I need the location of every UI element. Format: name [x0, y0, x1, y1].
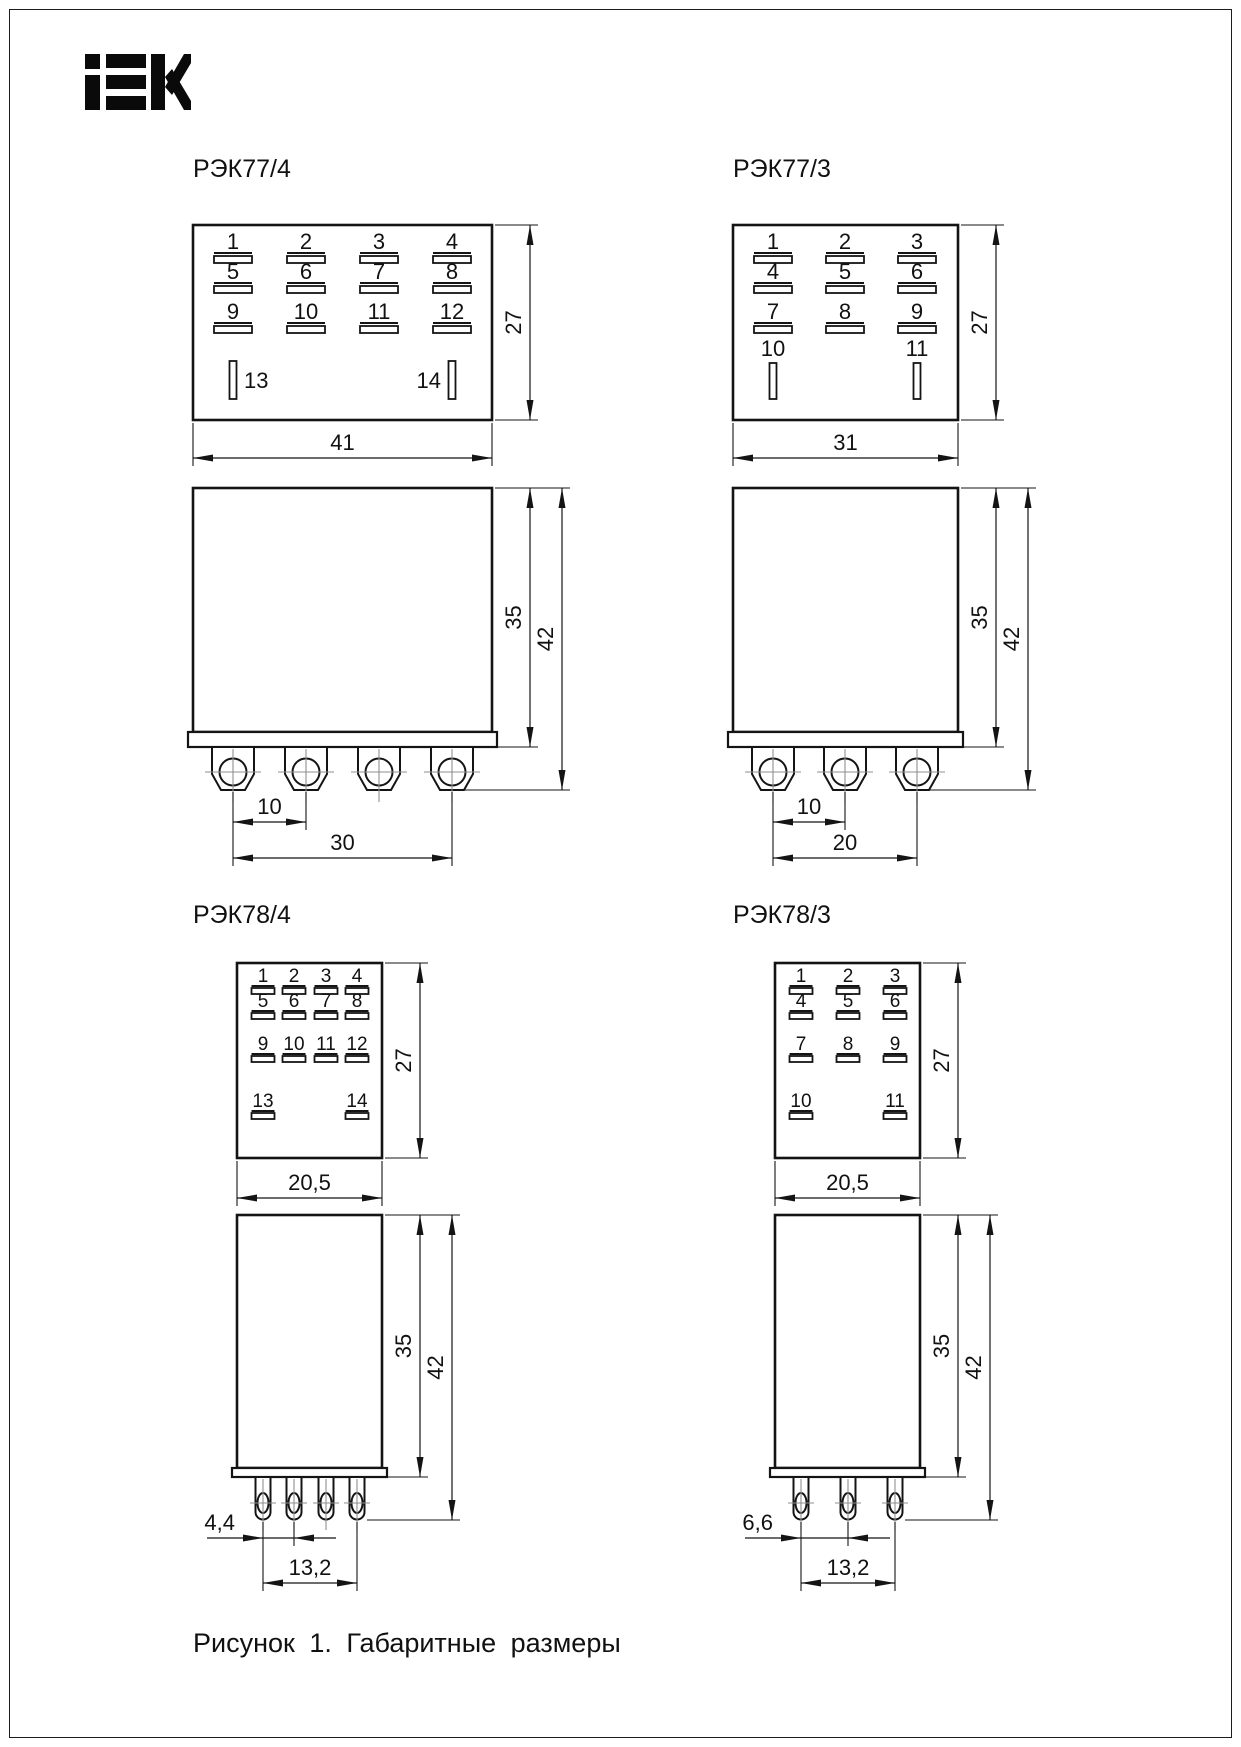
- svg-text:3: 3: [911, 229, 923, 254]
- svg-text:5: 5: [843, 991, 854, 1012]
- svg-text:13: 13: [244, 368, 268, 393]
- svg-text:4: 4: [796, 991, 807, 1012]
- svg-text:3: 3: [373, 229, 385, 254]
- svg-text:7: 7: [796, 1034, 807, 1055]
- svg-text:6: 6: [289, 991, 300, 1012]
- svg-text:35: 35: [967, 605, 992, 629]
- svg-text:13: 13: [252, 1091, 273, 1112]
- front-view: 35421020: [728, 488, 1036, 866]
- svg-text:27: 27: [501, 310, 526, 334]
- svg-text:27: 27: [967, 310, 992, 334]
- svg-text:11: 11: [316, 1034, 336, 1055]
- svg-text:10: 10: [797, 794, 821, 819]
- diagram-rek78-3: 123456789101120,52735426,613,2: [742, 963, 998, 1591]
- svg-text:31: 31: [833, 430, 857, 455]
- svg-text:7: 7: [373, 259, 385, 284]
- svg-text:9: 9: [890, 1034, 901, 1055]
- svg-text:8: 8: [352, 991, 363, 1012]
- svg-text:10: 10: [790, 1091, 811, 1112]
- svg-text:30: 30: [330, 830, 354, 855]
- svg-text:10: 10: [257, 794, 281, 819]
- svg-text:9: 9: [227, 299, 239, 324]
- svg-text:12: 12: [346, 1034, 367, 1055]
- svg-text:20,5: 20,5: [826, 1170, 869, 1195]
- svg-text:27: 27: [929, 1048, 954, 1072]
- svg-text:10: 10: [283, 1034, 304, 1055]
- svg-text:1: 1: [767, 229, 779, 254]
- svg-text:8: 8: [843, 1034, 854, 1055]
- svg-text:14: 14: [346, 1091, 368, 1112]
- svg-text:5: 5: [839, 259, 851, 284]
- svg-text:2: 2: [839, 229, 851, 254]
- diagram-rek78-4: 123456789101112131420,52735424,413,2: [204, 963, 460, 1591]
- front-view: 35421030: [188, 488, 570, 866]
- front-view: 35424,413,2: [204, 1215, 460, 1591]
- svg-text:42: 42: [533, 627, 558, 651]
- svg-text:11: 11: [906, 336, 929, 361]
- svg-text:2: 2: [300, 229, 312, 254]
- top-view: 12345678910113127: [733, 225, 1004, 466]
- svg-text:42: 42: [423, 1355, 448, 1379]
- svg-text:4: 4: [446, 229, 458, 254]
- svg-text:35: 35: [501, 605, 526, 629]
- svg-text:11: 11: [885, 1091, 905, 1112]
- svg-text:7: 7: [321, 991, 332, 1012]
- svg-text:20: 20: [833, 830, 857, 855]
- svg-text:42: 42: [999, 627, 1024, 651]
- svg-text:3: 3: [890, 966, 901, 987]
- svg-text:10: 10: [761, 336, 785, 361]
- svg-text:6: 6: [911, 259, 923, 284]
- svg-text:6,6: 6,6: [742, 1510, 773, 1535]
- svg-text:35: 35: [391, 1334, 416, 1358]
- svg-text:8: 8: [446, 259, 458, 284]
- top-view: 12345678910111213144127: [193, 225, 538, 466]
- svg-text:1: 1: [227, 229, 239, 254]
- svg-text:12: 12: [440, 299, 464, 324]
- svg-text:9: 9: [911, 299, 923, 324]
- svg-text:9: 9: [258, 1034, 269, 1055]
- svg-text:27: 27: [391, 1048, 416, 1072]
- svg-text:4: 4: [767, 259, 779, 284]
- svg-text:4,4: 4,4: [204, 1510, 235, 1535]
- front-view: 35426,613,2: [742, 1215, 998, 1591]
- top-view: 123456789101112131420,527: [237, 963, 428, 1206]
- svg-text:42: 42: [961, 1355, 986, 1379]
- svg-text:20,5: 20,5: [288, 1170, 331, 1195]
- svg-text:10: 10: [294, 299, 318, 324]
- svg-text:5: 5: [258, 991, 269, 1012]
- svg-text:41: 41: [330, 430, 354, 455]
- svg-text:1: 1: [796, 966, 807, 987]
- svg-text:13,2: 13,2: [289, 1555, 332, 1580]
- dimension-drawings: 1234567891011121314412735421030123456789…: [0, 0, 1241, 1747]
- svg-text:7: 7: [767, 299, 779, 324]
- svg-text:6: 6: [890, 991, 901, 1012]
- figure-caption: Рисунок 1. Габаритные размеры: [193, 1628, 621, 1659]
- svg-text:6: 6: [300, 259, 312, 284]
- top-view: 123456789101120,527: [775, 963, 966, 1206]
- svg-text:35: 35: [929, 1334, 954, 1358]
- svg-text:4: 4: [352, 966, 363, 987]
- diagram-rek77-4: 1234567891011121314412735421030: [188, 225, 570, 866]
- svg-text:13,2: 13,2: [827, 1555, 870, 1580]
- svg-text:2: 2: [289, 966, 300, 987]
- svg-text:11: 11: [368, 299, 391, 324]
- diagram-rek77-3: 1234567891011312735421020: [728, 225, 1036, 866]
- svg-text:5: 5: [227, 259, 239, 284]
- svg-text:14: 14: [417, 368, 441, 393]
- svg-text:3: 3: [321, 966, 332, 987]
- page: РЭК77/4 РЭК77/3 РЭК78/4 РЭК78/3 12345678…: [0, 0, 1241, 1747]
- svg-text:1: 1: [258, 966, 269, 987]
- svg-text:2: 2: [843, 966, 854, 987]
- svg-text:8: 8: [839, 299, 851, 324]
